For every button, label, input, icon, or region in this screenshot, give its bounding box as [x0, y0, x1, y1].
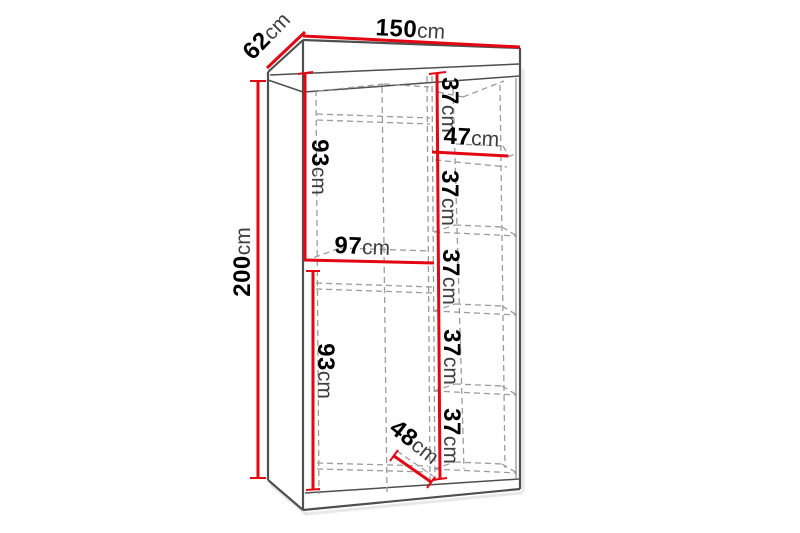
right-width-dimension-line	[432, 152, 508, 156]
dimension-labels: 150cm 62cm 200cm 93cm 97cm 93cm 37cm 47c…	[229, 6, 500, 469]
left-width-dimension-line	[304, 260, 434, 263]
width-dimension-label: 150cm	[375, 14, 446, 45]
diagram-canvas: 150cm 62cm 200cm 93cm 97cm 93cm 37cm 47c…	[0, 0, 800, 533]
upper-section-height-label: 93cm	[306, 139, 333, 195]
right-compartment-width-label: 47cm	[443, 123, 500, 153]
shelf-spacing-3-label: 37cm	[437, 249, 464, 305]
shelf-spacing-5-label: 37cm	[438, 408, 465, 464]
left-compartment-width-label: 97cm	[334, 232, 391, 261]
depth-dimension-label: 62cm	[238, 6, 296, 65]
shelf-spacing-2-label: 37cm	[436, 170, 463, 226]
shelf-spacing-4-label: 37cm	[438, 329, 465, 385]
wardrobe-dimension-diagram: 150cm 62cm 200cm 93cm 97cm 93cm 37cm 47c…	[0, 0, 800, 533]
height-dimension-label: 200cm	[229, 227, 256, 297]
lower-section-height-label: 93cm	[312, 343, 339, 399]
dimension-lines	[250, 32, 520, 490]
interior-depth-label: 48cm	[384, 414, 445, 470]
